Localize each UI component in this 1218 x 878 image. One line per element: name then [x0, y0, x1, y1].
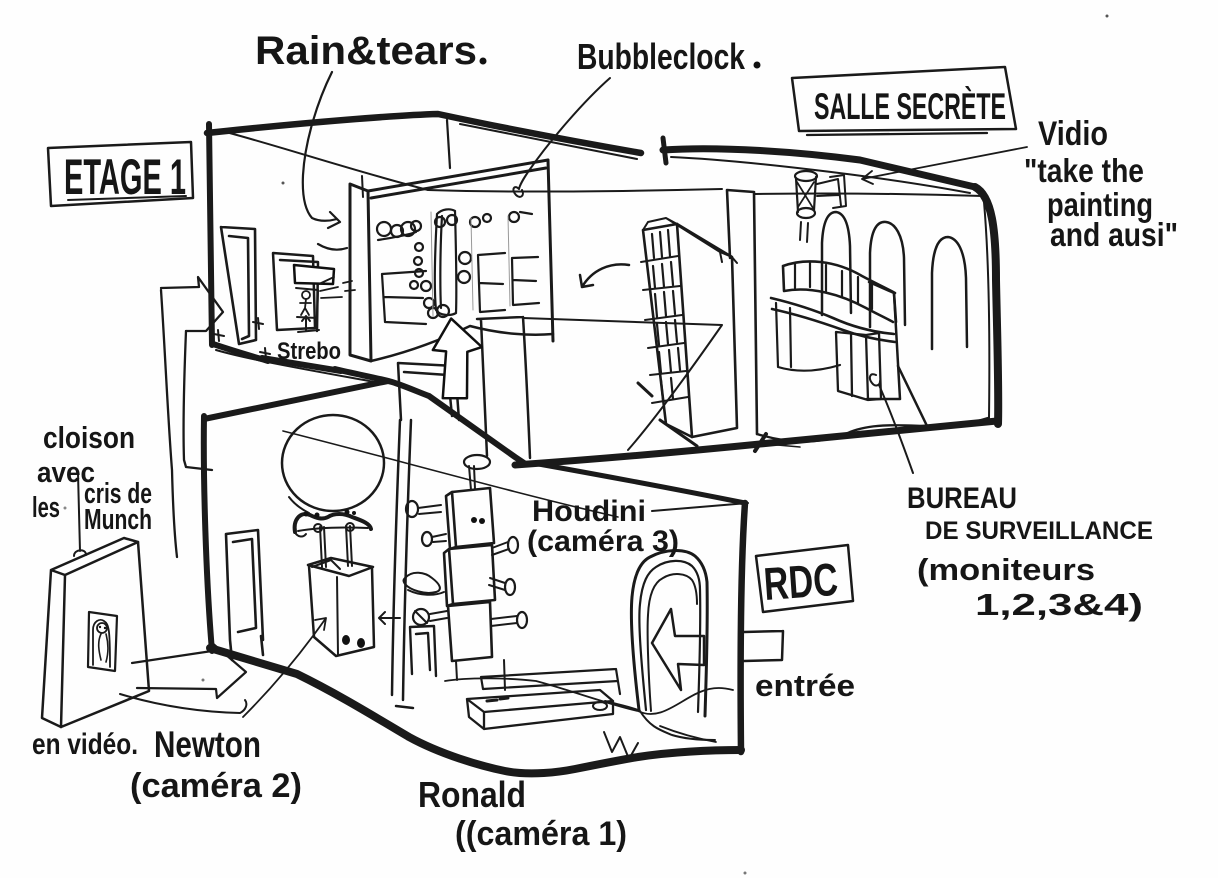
svg-text:Strebo: Strebo: [277, 338, 341, 365]
svg-text:(caméra 2): (caméra 2): [130, 767, 302, 805]
svg-text:RDC: RDC: [762, 553, 839, 610]
svg-text:((caméra 1): ((caméra 1): [455, 815, 627, 853]
svg-text:entrée: entrée: [755, 668, 855, 703]
svg-text:Newton: Newton: [154, 724, 261, 765]
svg-text:Bubbleclock: Bubbleclock: [577, 36, 746, 77]
svg-text:1,2,3&4): 1,2,3&4): [975, 587, 1143, 622]
svg-text:en vidéo.: en vidéo.: [32, 728, 138, 761]
svg-text:Houdini: Houdini: [532, 495, 646, 528]
svg-text:"take the: "take the: [1024, 152, 1144, 189]
svg-text:les: les: [32, 492, 60, 524]
svg-text:cloison: cloison: [43, 420, 135, 455]
svg-text:BUREAU: BUREAU: [907, 482, 1017, 515]
svg-text:(caméra 3): (caméra 3): [527, 525, 679, 558]
svg-text:Rain&tears: Rain&tears: [255, 29, 477, 73]
svg-text:SALLE SECRÈTE: SALLE SECRÈTE: [814, 86, 1006, 127]
svg-text:and ausi": and ausi": [1050, 216, 1178, 253]
svg-text:DE SURVEILLANCE: DE SURVEILLANCE: [925, 517, 1153, 545]
svg-text:(moniteurs: (moniteurs: [917, 552, 1095, 587]
svg-text:Munch: Munch: [84, 504, 152, 536]
svg-text:Vidio: Vidio: [1038, 115, 1108, 153]
svg-text:Ronald: Ronald: [418, 774, 526, 815]
svg-text:ETAGE 1: ETAGE 1: [64, 149, 186, 205]
